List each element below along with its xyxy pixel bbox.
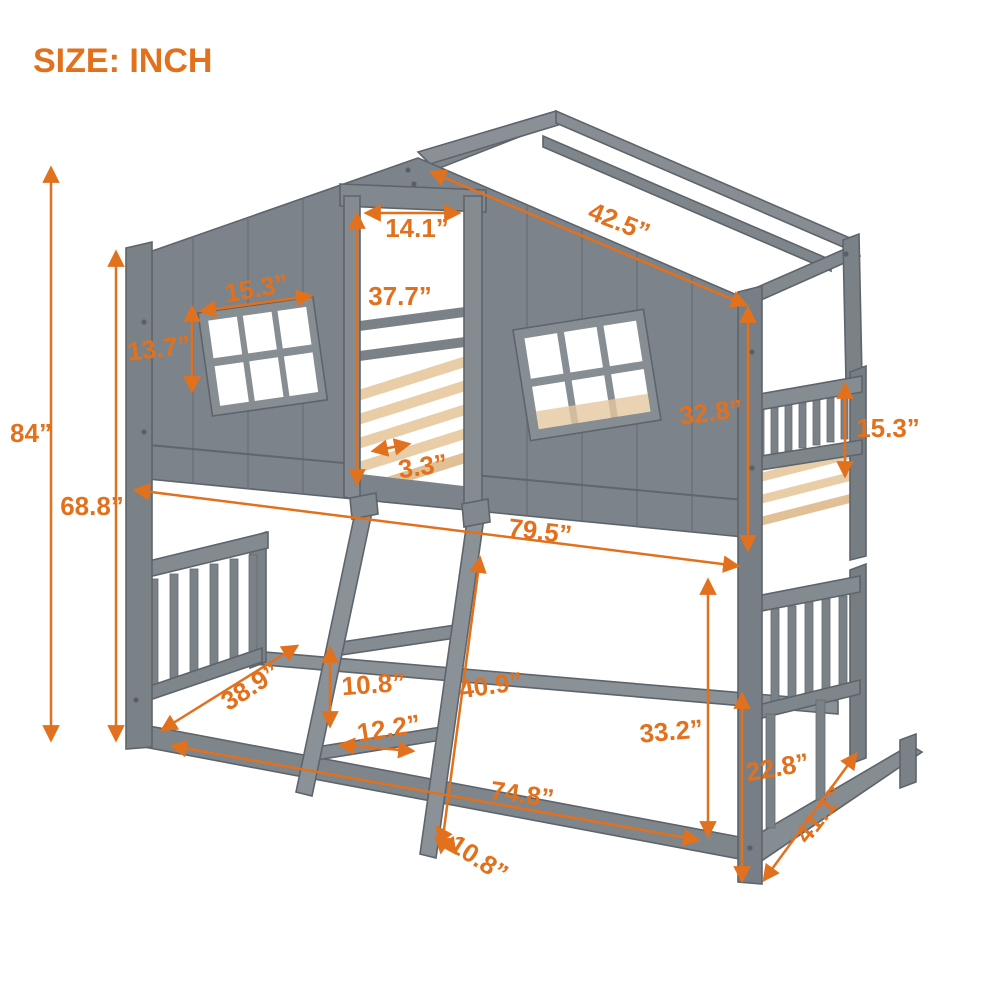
window-left bbox=[198, 297, 327, 416]
dim-label-ladder-step-spacing: 10.8” bbox=[341, 667, 407, 701]
bed-dimension-diagram: 84”68.8”14.1”37.7”15.3”13.7”42.5”32.8”15… bbox=[0, 0, 1000, 1000]
dim-label-under-bed-clearance: 33.2” bbox=[638, 713, 704, 748]
ladder-hook-right bbox=[462, 499, 490, 527]
diagram-title: SIZE: INCH bbox=[33, 42, 212, 80]
window-right bbox=[513, 309, 661, 440]
front-left-post bbox=[126, 242, 152, 749]
dim-label-ladder-foot-offset: 10.8” bbox=[444, 829, 514, 889]
upper-guard-rail bbox=[748, 366, 866, 560]
dim-label-guardrail-height: 15.3” bbox=[856, 413, 920, 443]
diagram-canvas: 84”68.8”14.1”37.7”15.3”13.7”42.5”32.8”15… bbox=[0, 0, 1000, 1000]
dim-label-overall-height: 84” bbox=[10, 418, 52, 448]
dim-label-door-opening-height: 37.7” bbox=[368, 281, 432, 311]
dim-label-height-to-eave: 68.8” bbox=[60, 491, 124, 521]
door-post-right bbox=[464, 196, 482, 513]
dim-label-door-opening-width: 14.1” bbox=[385, 213, 449, 243]
ladder-hook-left bbox=[350, 493, 378, 519]
dim-label-upper-bed-length: 79.5” bbox=[507, 512, 574, 550]
guard-rail-rear-post bbox=[850, 366, 866, 560]
rear-right-leg bbox=[900, 734, 916, 788]
